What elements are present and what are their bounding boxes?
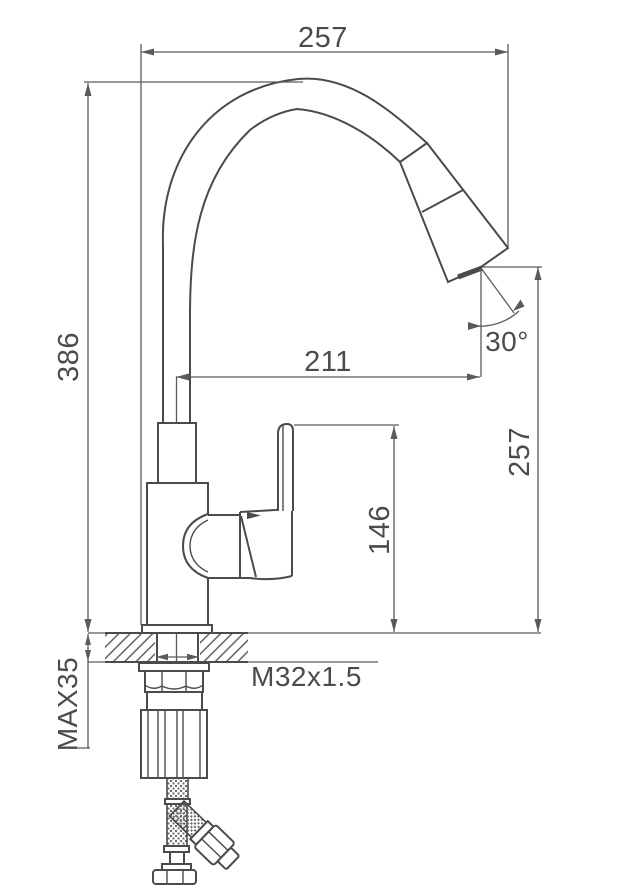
- drawing-svg: 257 386 211 30° 257 146 M32x1.5 MAX35: [0, 0, 621, 894]
- mounting-hardware: [139, 663, 244, 884]
- label-thread-spec: M32x1.5: [251, 661, 362, 692]
- neck-collar: [158, 423, 196, 483]
- label-max-thickness: MAX35: [52, 657, 83, 751]
- faucet-spout: [163, 79, 427, 423]
- label-overall-height: 386: [53, 332, 85, 382]
- label-spout-reach: 211: [304, 346, 352, 378]
- countertop-hatch-left: [105, 634, 155, 662]
- base-flange: [142, 625, 212, 633]
- supply-hose-top: [167, 778, 188, 800]
- mounting-washer: [139, 663, 209, 671]
- mounting-sleeve: [141, 710, 207, 778]
- countertop-hatch-right: [200, 634, 248, 662]
- label-body-height: 146: [364, 505, 396, 555]
- label-spray-angle: 30°: [485, 326, 529, 357]
- label-top-width: 257: [298, 22, 348, 54]
- hose-nut-left: [153, 870, 196, 884]
- label-outlet-height: 257: [504, 427, 536, 477]
- spray-head: [400, 143, 508, 282]
- faucet-technical-drawing: 257 386 211 30° 257 146 M32x1.5 MAX35: [0, 0, 621, 894]
